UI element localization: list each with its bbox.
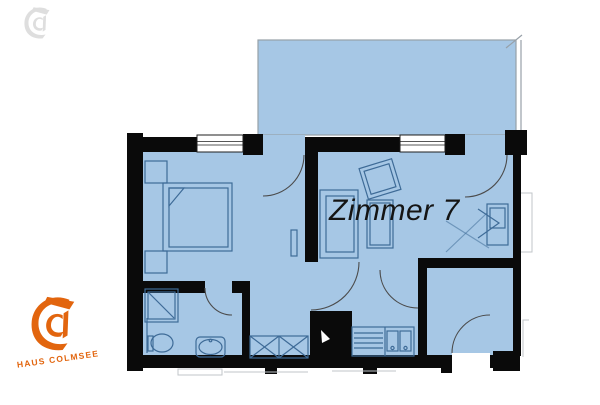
window-icon	[400, 135, 445, 152]
haus-colmsee-logo-icon	[24, 290, 82, 354]
room-label: Zimmer 7	[329, 194, 460, 228]
floorplan-page: Zimmer 7 HAUS COLMSEE	[0, 0, 600, 405]
entrance-door-gap	[452, 353, 490, 369]
haus-colmsee-watermark-icon	[20, 2, 54, 42]
shaft-block	[310, 311, 352, 357]
balcony	[258, 35, 522, 135]
window-icon	[197, 135, 243, 152]
floor-plan	[0, 0, 600, 405]
